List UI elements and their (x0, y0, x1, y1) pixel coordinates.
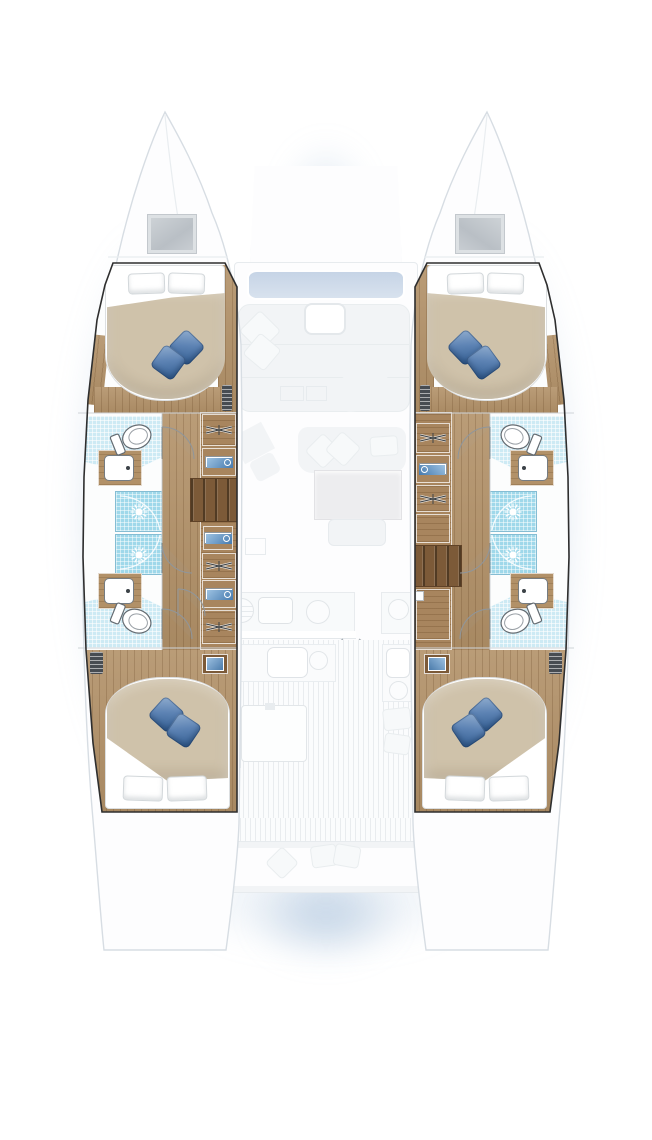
shower-head-icon (505, 547, 522, 564)
toilet-icon (497, 421, 542, 457)
forward-cockpit-box (280, 386, 304, 401)
stern-bench-cushion (332, 843, 361, 869)
toilet-icon (497, 601, 542, 637)
forward-cockpit-table (304, 303, 346, 335)
door-arc (178, 589, 205, 616)
cabin-ink-starboard (402, 105, 574, 960)
cockpit-table-notch (265, 703, 275, 710)
toilet-icon (109, 421, 154, 457)
wet-bar-sink (267, 647, 308, 678)
hull-port (78, 105, 250, 960)
door-arc (460, 609, 490, 639)
shower-head-icon (505, 504, 522, 521)
shower-head-icon (131, 504, 148, 521)
hull-starboard (402, 105, 574, 960)
cabin-ink-port (78, 105, 250, 960)
forward-cockpit-box (306, 386, 327, 401)
wet-bar-burner (309, 651, 328, 670)
catamaran-deck-plan (0, 0, 652, 1140)
shower-head-icon (131, 547, 148, 564)
sofa-cushion (369, 435, 398, 457)
door-arc (162, 427, 194, 459)
door-arc (458, 427, 490, 459)
forward-cockpit-side-seat (339, 372, 391, 413)
galley-sink (258, 597, 293, 624)
cockpit-table (241, 705, 307, 762)
door-arc (162, 543, 192, 573)
galley-burner (306, 600, 330, 624)
coachroof-window-band (247, 270, 405, 300)
salon-bench (328, 519, 386, 546)
foredeck-panel (250, 166, 402, 266)
toilet-icon (109, 601, 154, 637)
door-arc (460, 543, 490, 573)
door-arc (162, 609, 192, 639)
salon-table (314, 470, 402, 520)
